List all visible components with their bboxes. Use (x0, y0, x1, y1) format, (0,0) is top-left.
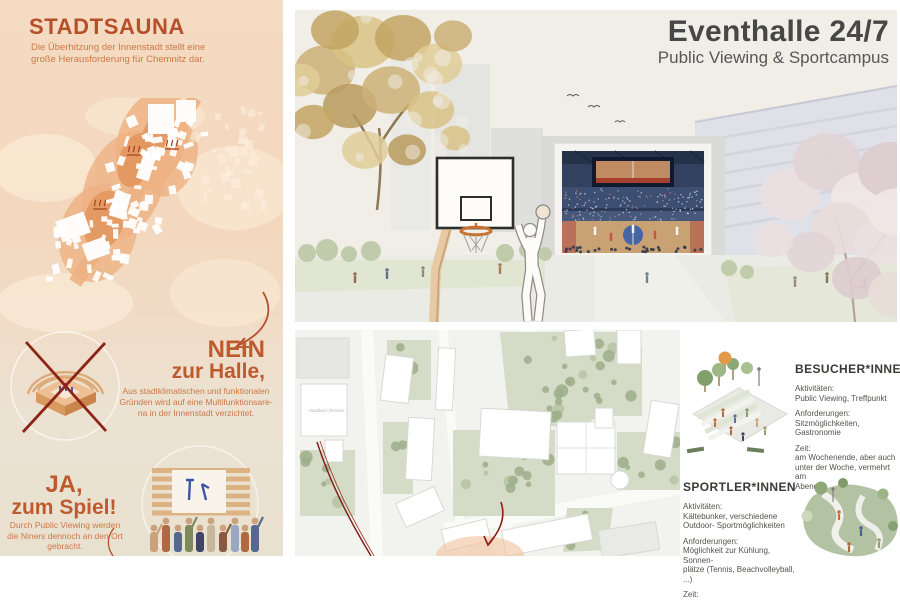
persona-item: Aktivitäten: Kältebunker, verschiedeneOu… (683, 502, 797, 531)
hero-subtitle: Public Viewing & Sportcampus (658, 48, 889, 67)
sportler-section: SPORTLER*INNEN Aktivitäten: Kältebunker,… (683, 480, 797, 606)
hero-title-block: Eventhalle 24/7 Public Viewing & Sportca… (658, 16, 889, 67)
trees (697, 352, 753, 393)
site-plan-svg: Stadtbad Chemnitz (295, 330, 680, 556)
hero-title: Eventhalle 24/7 (658, 16, 889, 48)
basketball (536, 205, 550, 219)
ja-heading: JA, zum Spiel! (8, 472, 120, 518)
site-plan-map: Stadtbad Chemnitz (295, 330, 680, 556)
small-arrow-icon (96, 528, 130, 556)
sportler-illustration (791, 468, 900, 563)
panel-title: STADTSAUNA (29, 14, 185, 40)
persona-item: Anforderungen: Sitzmöglichkeiten, Gastro… (795, 409, 898, 438)
presentation-board: { "colors": { "accent_rust": "#b5502a", … (0, 0, 900, 556)
map-building-label: Stadtbad Chemnitz (309, 408, 345, 413)
nein-heading: NEIN zur Halle, (115, 338, 265, 382)
nein-body-text: Aus stadtklimatischen und funktionalenGr… (118, 386, 274, 419)
crowd-figures (150, 517, 263, 552)
hero-rendering: Eventhalle 24/7 Public Viewing & Sportca… (295, 10, 897, 322)
personas-column: BESUCHER*INNEN Aktivitäten: Public Viewi… (683, 330, 900, 556)
panel-subtitle: Die Überhitzung der Innenstadt stellt ei… (31, 42, 205, 66)
besucher-illustration (685, 350, 795, 462)
public-screen (172, 470, 226, 513)
besucher-heading: BESUCHER*INNEN (795, 362, 898, 376)
stadtsauna-panel: STADTSAUNA Die Überhitzung der Innenstad… (0, 0, 283, 556)
persona-item: Zeit: (683, 590, 797, 600)
arena-crossed-illustration (8, 330, 123, 442)
public-viewing-illustration (138, 440, 283, 556)
persona-item: Anforderungen: Möglichkeit zur Kühlung, … (683, 537, 797, 585)
arena-screen (562, 151, 704, 253)
persona-item: Aktivitäten: Public Viewing, Treffpunkt (795, 384, 898, 403)
sportler-heading: SPORTLER*INNEN (683, 480, 797, 494)
